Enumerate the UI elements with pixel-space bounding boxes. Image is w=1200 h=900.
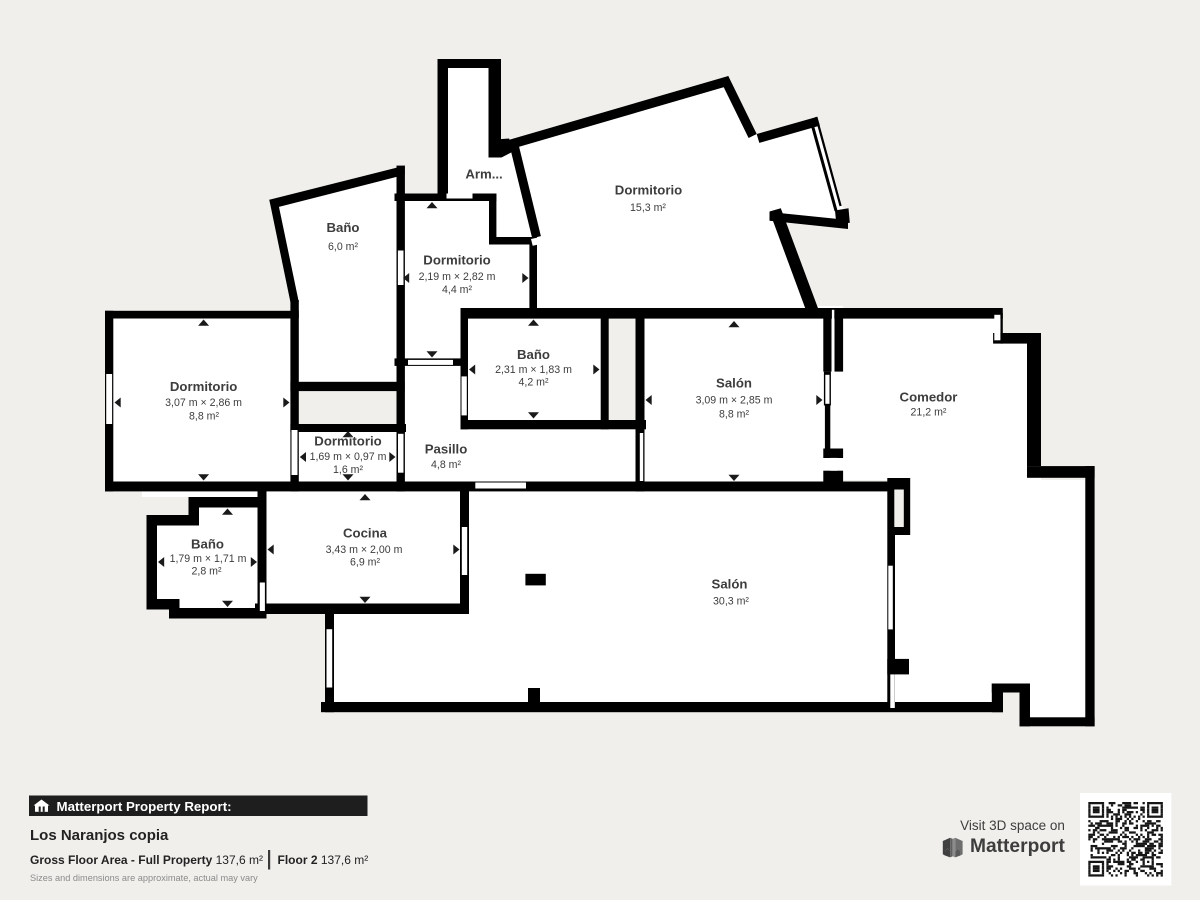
svg-text:21,2 m²: 21,2 m² <box>911 407 947 419</box>
svg-text:6,0 m²: 6,0 m² <box>328 241 358 253</box>
svg-text:1,79 m × 1,71 m: 1,79 m × 1,71 m <box>170 553 247 565</box>
svg-text:Arm...: Arm... <box>465 167 502 182</box>
svg-text:8,8 m²: 8,8 m² <box>189 411 219 423</box>
svg-text:15,3 m²: 15,3 m² <box>630 202 666 214</box>
svg-text:Baño: Baño <box>517 347 550 362</box>
svg-text:1,6 m²: 1,6 m² <box>333 464 363 476</box>
svg-text:Baño: Baño <box>327 220 360 235</box>
svg-text:2,19 m × 2,82 m: 2,19 m × 2,82 m <box>419 271 496 283</box>
svg-text:1,69 m × 0,97 m: 1,69 m × 0,97 m <box>310 451 387 463</box>
svg-text:3,07 m × 2,86 m: 3,07 m × 2,86 m <box>165 397 242 409</box>
svg-text:Dormitorio: Dormitorio <box>170 379 237 394</box>
svg-text:Salón: Salón <box>712 577 748 592</box>
svg-text:Baño: Baño <box>191 537 224 552</box>
svg-text:4,8 m²: 4,8 m² <box>431 459 461 471</box>
svg-text:Matterport: Matterport <box>970 836 1065 857</box>
svg-text:Dormitorio: Dormitorio <box>314 434 381 449</box>
svg-text:Sizes and dimensions are appro: Sizes and dimensions are approximate, ac… <box>30 873 258 883</box>
svg-text:Los Naranjos copia: Los Naranjos copia <box>30 827 169 844</box>
svg-text:Dormitorio: Dormitorio <box>615 183 682 198</box>
svg-text:Pasillo: Pasillo <box>425 442 468 457</box>
svg-text:4,2 m²: 4,2 m² <box>518 377 548 389</box>
svg-text:3,43 m × 2,00 m: 3,43 m × 2,00 m <box>326 544 403 556</box>
svg-text:2,8 m²: 2,8 m² <box>191 566 221 578</box>
svg-text:Cocina: Cocina <box>343 526 388 541</box>
svg-text:4,4 m²: 4,4 m² <box>442 284 472 296</box>
svg-text:Dormitorio: Dormitorio <box>423 253 490 268</box>
svg-text:30,3 m²: 30,3 m² <box>713 596 749 608</box>
svg-text:Gross Floor Area - Full Proper: Gross Floor Area - Full Property 137,6 m… <box>30 853 263 867</box>
svg-text:Floor 2 137,6 m²: Floor 2 137,6 m² <box>278 853 369 867</box>
svg-text:2,31 m × 1,83 m: 2,31 m × 1,83 m <box>495 364 572 376</box>
svg-text:Comedor: Comedor <box>900 390 958 405</box>
svg-text:6,9 m²: 6,9 m² <box>350 557 380 569</box>
svg-text:Salón: Salón <box>716 376 752 391</box>
svg-text:3,09 m × 2,85 m: 3,09 m × 2,85 m <box>696 395 773 407</box>
svg-text:Matterport Property Report:: Matterport Property Report: <box>57 799 232 814</box>
svg-text:Visit 3D space on: Visit 3D space on <box>960 818 1065 833</box>
svg-text:8,8 m²: 8,8 m² <box>719 409 749 421</box>
